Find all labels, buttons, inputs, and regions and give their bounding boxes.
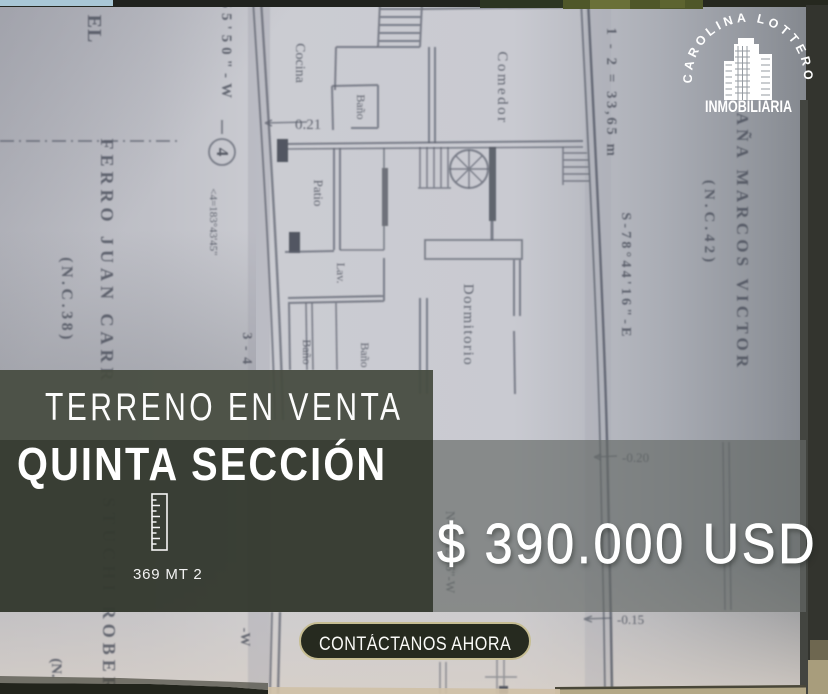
svg-text:4: 4: [213, 148, 232, 157]
svg-text:Baño: Baño: [354, 94, 368, 119]
svg-text:Dormitorio: Dormitorio: [460, 284, 476, 367]
svg-text:EL: EL: [83, 15, 105, 44]
svg-text:-W: -W: [237, 628, 252, 647]
svg-text:(N.C.38): (N.C.38): [58, 257, 75, 343]
svg-text:<4=183°43'45": <4=183°43'45": [207, 188, 219, 255]
svg-text:-0.15: -0.15: [617, 612, 644, 627]
svg-text:Comedor: Comedor: [494, 51, 510, 124]
svg-text:3 - 4: 3 - 4: [239, 332, 254, 365]
svg-text:Lav.: Lav.: [334, 263, 348, 284]
svg-text:INMOBILIARIA: INMOBILIARIA: [705, 98, 792, 116]
svg-text:0.21: 0.21: [295, 117, 321, 133]
svg-text:0°55'50"-W: 0°55'50"-W: [218, 0, 234, 103]
svg-text:(N.C.42): (N.C.42): [701, 180, 717, 266]
svg-text:Cocina: Cocina: [292, 43, 307, 83]
svg-text:AÑA MARCOS VICTOR: AÑA MARCOS VICTOR: [733, 113, 752, 372]
svg-text:(N.: (N.: [48, 658, 64, 678]
svg-text:Baño: Baño: [300, 339, 314, 364]
svg-text:Patio: Patio: [311, 180, 326, 207]
svg-text:S-78°44'16"-E: S-78°44'16"-E: [618, 212, 633, 339]
svg-text:FERRO JUAN CARR: FERRO JUAN CARR: [97, 139, 117, 386]
svg-text:Baño: Baño: [358, 342, 372, 367]
